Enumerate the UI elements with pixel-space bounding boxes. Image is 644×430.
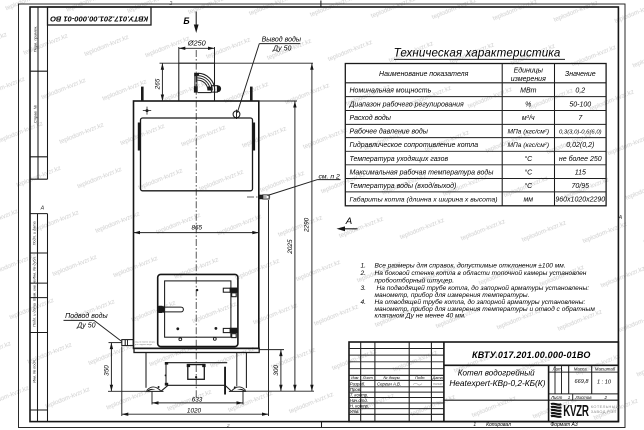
svg-text:Б: Б [183,16,189,26]
svg-text:КВТУ.017.201.00.000-01 ВО: КВТУ.017.201.00.000-01 ВО [50,14,148,23]
svg-text:Максимальная рабочая температу: Максимальная рабочая температура воды [350,168,495,176]
svg-text:Дата: Дата [431,375,443,380]
svg-text:2: 2 [226,423,230,428]
svg-text:Габариты котла (длинна х ширин: Габариты котла (длинна х ширина х высота… [350,196,498,204]
svg-text:633: 633 [192,396,203,403]
svg-text:865: 865 [191,225,202,232]
svg-text:Ду 50: Ду 50 [272,45,291,52]
svg-text:2290: 2290 [303,217,310,233]
svg-text:300: 300 [273,365,280,376]
svg-text:2: 2 [604,395,608,400]
svg-text:Ду 50: Ду 50 [76,322,95,329]
svg-text:Масса: Масса [574,366,588,371]
svg-text:1: 1 [473,422,476,428]
svg-text:115: 115 [575,169,586,176]
svg-text:Температура воды (вход/выход): Температура воды (вход/выход) [350,182,457,190]
svg-text:Рабочее давление воды: Рабочее давление воды [350,128,429,136]
svg-text:Номинальная мощность: Номинальная мощность [350,88,432,95]
svg-text:1020: 1020 [187,408,202,415]
svg-text:А: А [618,215,623,221]
svg-text:Лит.: Лит. [552,366,563,371]
svg-text:Нач.отд.: Нач.отд. [350,398,368,403]
svg-text:3.: 3. [361,285,367,292]
svg-text:Подп.: Подп. [415,375,425,380]
svg-text:пробоотборный штуцер.: пробоотборный штуцер. [375,277,455,285]
svg-text:манометр, прибор для измерения: манометр, прибор для измерения температу… [375,291,530,299]
svg-text:Листов: Листов [575,395,593,400]
svg-text:Значение: Значение [565,71,596,78]
svg-text:KVZR: KVZR [563,401,589,419]
svg-text:для подачи воды: для подачи воды [135,344,153,346]
svg-text:Ø250: Ø250 [187,38,206,47]
svg-text:350: 350 [103,365,110,376]
svg-text:А: А [40,206,45,212]
svg-text:265: 265 [154,78,161,90]
svg-text:%: % [525,101,531,108]
svg-text:Котел водогрейный: Котел водогрейный [458,369,535,378]
svg-text:960х1020х2290: 960х1020х2290 [555,197,605,204]
svg-text:Формат А3: Формат А3 [550,422,578,428]
svg-text:№ докум.: № докум. [383,375,400,380]
svg-text:2: 2 [169,1,173,7]
svg-text:КВТУ.017.201.00.000-01ВО: КВТУ.017.201.00.000-01ВО [472,350,591,360]
svg-text:Разраб.: Разраб. [350,381,366,386]
svg-text:измерения: измерения [511,76,546,83]
svg-text:пилип: пилип [433,382,443,386]
svg-text:Температура уходящих газов: Температура уходящих газов [350,155,449,163]
svg-text:Подп. и дата: Подп. и дата [32,221,36,245]
svg-text:Heatexpert-КВр-0,2-КБ(К): Heatexpert-КВр-0,2-КБ(К) [449,378,545,388]
svg-text:Инв. № подл.: Инв. № подл. [32,359,36,383]
svg-text:50-100: 50-100 [569,101,591,108]
svg-text:МВт: МВт [520,88,537,95]
svg-text:0,02(0,2): 0,02(0,2) [566,142,594,149]
svg-text:4.: 4. [361,299,367,306]
svg-text:Вывод воды: Вывод воды [262,35,302,43]
svg-text:Наименование показателя: Наименование показателя [379,71,469,78]
svg-text:1.: 1. [361,263,367,270]
svg-text:Справ. №: Справ. № [32,104,37,123]
svg-text:°С: °С [524,168,533,176]
svg-text:°С: °С [524,182,533,190]
svg-text:0,3(3,0)-0,6(6,0): 0,3(3,0)-0,6(6,0) [559,130,602,136]
svg-text:не более 250: не более 250 [559,155,602,163]
svg-text:0,2: 0,2 [575,88,585,95]
svg-text:м3/ч: м3/ч [522,114,535,122]
svg-text:На боковой стенке котла в обла: На боковой стенке котла в области топочн… [375,269,587,277]
svg-text:Т. контр.: Т. контр. [350,392,369,397]
svg-text:Утв.: Утв. [350,409,360,414]
svg-text:Единицы: Единицы [514,67,544,75]
svg-text:Н. контр.: Н. контр. [350,404,369,409]
svg-text:А: А [345,216,352,227]
svg-text:Перв. примен.: Перв. примен. [32,26,37,53]
svg-text:Сергин А.В.: Сергин А.В. [377,381,401,386]
svg-text:1 : 10: 1 : 10 [597,379,612,385]
svg-text:Все размеры для справок, допус: Все размеры для справок, допустимые откл… [375,262,566,270]
svg-text:МПа (кгс/см2): МПа (кгс/см2) [508,129,550,136]
svg-text:Пров.: Пров. [350,387,361,392]
svg-text:669,8: 669,8 [575,379,590,385]
svg-text:ЗАВОД РЭП: ЗАВОД РЭП [591,409,617,414]
svg-text:°С: °С [524,155,533,163]
svg-text:Взам. инв. №: Взам. инв. № [32,279,36,300]
svg-text:Масштаб: Масштаб [595,366,616,371]
svg-text:Гидравлическое сопротивление к: Гидравлическое сопротивление котла [350,141,479,149]
svg-text:Подп. и дата: Подп. и дата [32,303,36,327]
svg-text:Подвод воды: Подвод воды [65,312,108,320]
svg-text:2.: 2. [360,270,367,277]
svg-text:мм: мм [523,197,533,204]
svg-text:Лист: Лист [550,395,563,400]
svg-text:Копировал: Копировал [486,422,511,428]
svg-text:70/95: 70/95 [572,183,590,190]
svg-text:клапаном Ду не менее 40 мм.: клапаном Ду не менее 40 мм. [375,313,467,320]
svg-text:МПа (кгс/см2): МПа (кгс/см2) [508,142,550,149]
svg-text:Лист: Лист [362,375,374,380]
svg-text:Техническая характеристика: Техническая характеристика [394,47,561,60]
svg-text:Расход воды: Расход воды [350,114,392,122]
svg-text:Изм: Изм [351,375,359,380]
svg-text:Инв. № дубл.: Инв. № дубл. [32,256,36,279]
svg-text:Диапазон рабочего регулировани: Диапазон рабочего регулирования [349,100,465,108]
svg-text:2025: 2025 [287,239,294,255]
